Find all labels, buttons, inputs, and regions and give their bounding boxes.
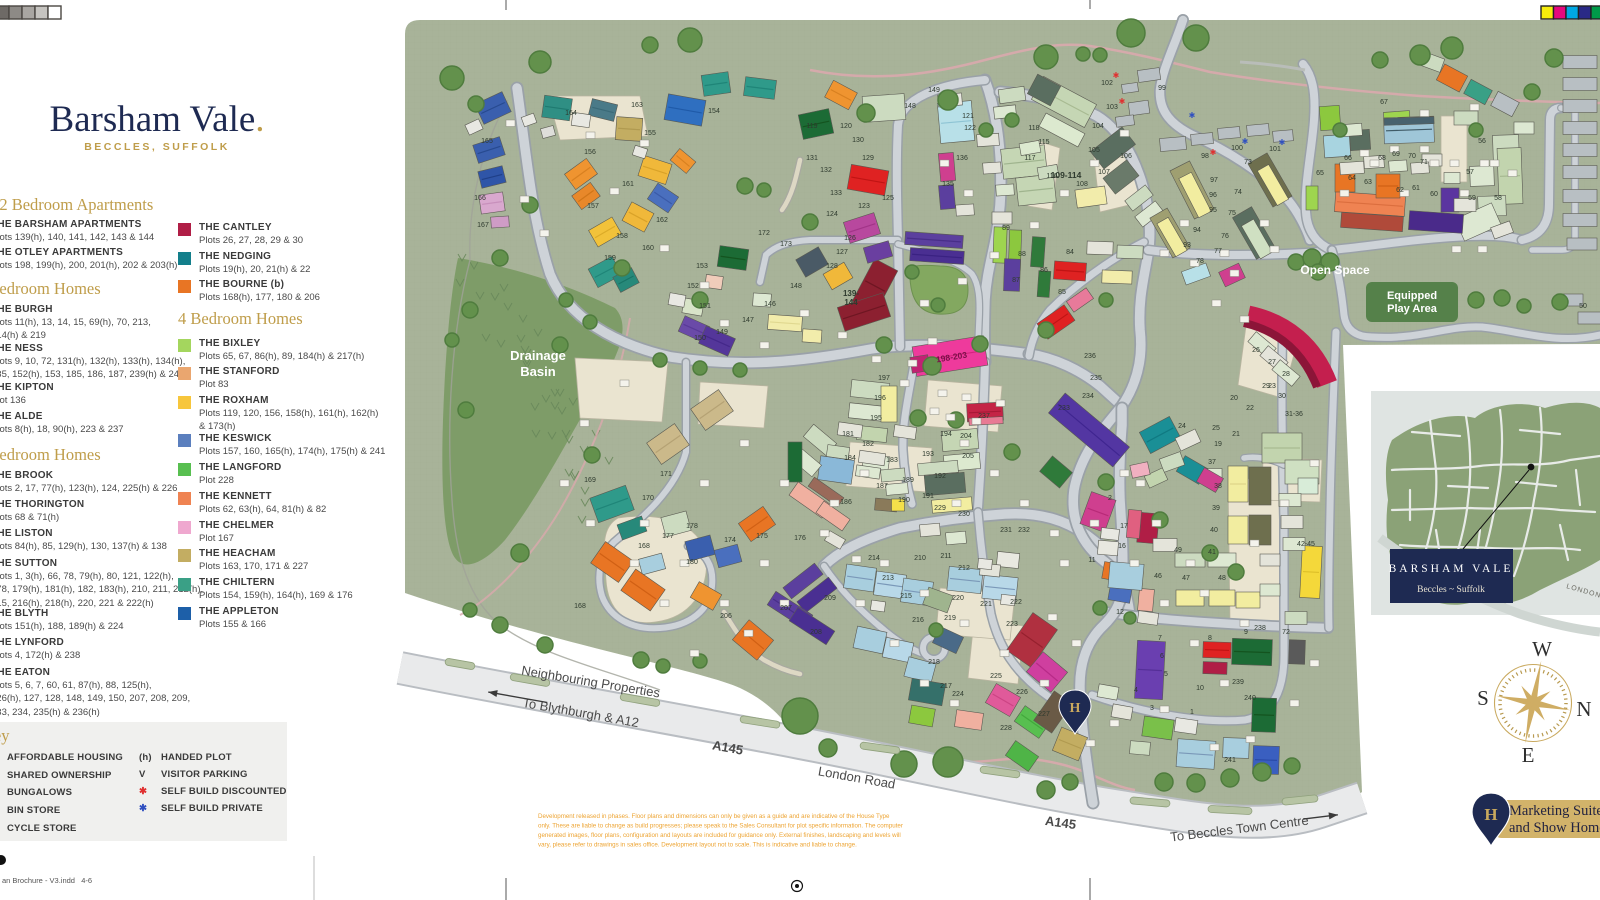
svg-text:66: 66 bbox=[1344, 155, 1352, 162]
svg-text:69: 69 bbox=[1392, 151, 1400, 158]
svg-text:148: 148 bbox=[790, 283, 802, 290]
svg-text:173: 173 bbox=[780, 241, 792, 248]
svg-text:214: 214 bbox=[868, 555, 880, 562]
svg-text:192: 192 bbox=[934, 473, 946, 480]
svg-text:1: 1 bbox=[1190, 709, 1194, 716]
svg-text:E: E bbox=[1522, 743, 1535, 767]
svg-text:209: 209 bbox=[824, 595, 836, 602]
svg-text:117: 117 bbox=[1024, 155, 1035, 162]
svg-text:75: 75 bbox=[1228, 210, 1236, 217]
svg-text:H: H bbox=[1484, 805, 1497, 824]
svg-text:232: 232 bbox=[1018, 527, 1030, 534]
svg-text:70: 70 bbox=[1408, 153, 1416, 160]
svg-text:99: 99 bbox=[1158, 85, 1166, 92]
svg-text:238: 238 bbox=[1254, 625, 1266, 632]
svg-text:222: 222 bbox=[1010, 599, 1022, 606]
svg-text:22: 22 bbox=[1246, 405, 1254, 412]
svg-text:237: 237 bbox=[978, 413, 990, 420]
svg-text:178: 178 bbox=[686, 523, 698, 530]
svg-text:158: 158 bbox=[616, 233, 628, 240]
svg-text:5: 5 bbox=[1164, 671, 1168, 678]
svg-text:38: 38 bbox=[1214, 483, 1222, 490]
svg-text:182: 182 bbox=[862, 441, 874, 448]
svg-text:123: 123 bbox=[858, 203, 870, 210]
svg-text:EquippedPlay Area: EquippedPlay Area bbox=[1387, 290, 1438, 315]
svg-text:21: 21 bbox=[1232, 431, 1240, 438]
svg-text:Beccles ~ Suffolk: Beccles ~ Suffolk bbox=[1417, 584, 1485, 595]
svg-text:78: 78 bbox=[1196, 258, 1204, 265]
svg-text:3: 3 bbox=[1150, 705, 1154, 712]
svg-text:227: 227 bbox=[1038, 711, 1050, 718]
svg-text:139-144: 139-144 bbox=[843, 289, 859, 307]
svg-text:56: 56 bbox=[1478, 138, 1486, 145]
svg-text:217: 217 bbox=[940, 683, 952, 690]
svg-text:240: 240 bbox=[1244, 695, 1256, 702]
svg-text:65: 65 bbox=[1316, 170, 1324, 177]
svg-text:168: 168 bbox=[638, 543, 650, 550]
svg-text:157: 157 bbox=[587, 203, 599, 210]
svg-text:233: 233 bbox=[1058, 405, 1070, 412]
svg-text:H: H bbox=[1070, 701, 1081, 716]
svg-text:129: 129 bbox=[862, 155, 874, 162]
svg-text:50: 50 bbox=[1579, 303, 1587, 310]
svg-text:Development released in phases: Development released in phases. Floor pl… bbox=[538, 813, 890, 820]
svg-text:28: 28 bbox=[1282, 371, 1290, 378]
svg-text:180: 180 bbox=[686, 559, 698, 566]
svg-text:127: 127 bbox=[836, 249, 848, 256]
svg-text:168: 168 bbox=[574, 603, 586, 610]
svg-text:241: 241 bbox=[1224, 757, 1236, 764]
svg-text:74: 74 bbox=[1234, 189, 1242, 196]
svg-text:190: 190 bbox=[898, 497, 910, 504]
svg-text:✱: ✱ bbox=[1113, 71, 1120, 80]
svg-text:62: 62 bbox=[1396, 187, 1404, 194]
svg-text:223: 223 bbox=[1006, 621, 1018, 628]
svg-text:211: 211 bbox=[940, 553, 951, 560]
svg-text:130: 130 bbox=[852, 137, 864, 144]
svg-text:220: 220 bbox=[952, 595, 964, 602]
svg-text:26: 26 bbox=[1252, 347, 1260, 354]
svg-text:96: 96 bbox=[1209, 192, 1217, 199]
svg-text:196: 196 bbox=[874, 395, 886, 402]
svg-text:95: 95 bbox=[1209, 207, 1217, 214]
svg-text:59: 59 bbox=[1468, 195, 1476, 202]
svg-text:101: 101 bbox=[1269, 146, 1281, 153]
svg-text:118: 118 bbox=[1028, 125, 1039, 132]
svg-text:125: 125 bbox=[882, 195, 894, 202]
svg-text:135: 135 bbox=[942, 181, 954, 188]
svg-text:195: 195 bbox=[870, 415, 882, 422]
svg-text:150: 150 bbox=[694, 335, 706, 342]
svg-text:166: 166 bbox=[474, 195, 486, 202]
svg-text:57: 57 bbox=[1466, 169, 1474, 176]
svg-text:153: 153 bbox=[696, 263, 708, 270]
svg-text:228: 228 bbox=[1000, 725, 1012, 732]
svg-text:Open Space: Open Space bbox=[1300, 263, 1370, 277]
svg-text:149: 149 bbox=[716, 329, 728, 336]
svg-text:169: 169 bbox=[584, 477, 596, 484]
svg-text:120: 120 bbox=[840, 123, 852, 130]
svg-text:172: 172 bbox=[758, 230, 770, 237]
svg-text:W: W bbox=[1532, 637, 1552, 661]
svg-text:234: 234 bbox=[1082, 393, 1094, 400]
svg-text:4: 4 bbox=[1134, 687, 1138, 694]
svg-text:25: 25 bbox=[1212, 425, 1220, 432]
svg-text:193: 193 bbox=[922, 451, 934, 458]
svg-text:72: 72 bbox=[1282, 629, 1290, 636]
svg-text:208: 208 bbox=[810, 629, 822, 636]
svg-text:213: 213 bbox=[882, 575, 894, 582]
svg-text:163: 163 bbox=[631, 102, 643, 109]
svg-text:97: 97 bbox=[1210, 177, 1218, 184]
svg-text:98: 98 bbox=[1201, 153, 1209, 160]
svg-text:9: 9 bbox=[1244, 629, 1248, 636]
svg-text:47: 47 bbox=[1182, 575, 1190, 582]
svg-text:107: 107 bbox=[1098, 169, 1110, 176]
svg-text:48: 48 bbox=[1218, 575, 1226, 582]
svg-text:219: 219 bbox=[944, 615, 956, 622]
svg-text:73: 73 bbox=[1244, 159, 1252, 166]
svg-text:151: 151 bbox=[699, 303, 711, 310]
svg-text:231: 231 bbox=[1000, 527, 1012, 534]
svg-text:86: 86 bbox=[1040, 267, 1048, 274]
svg-text:216: 216 bbox=[912, 617, 924, 624]
svg-text:167: 167 bbox=[477, 222, 489, 229]
svg-text:128: 128 bbox=[826, 263, 838, 270]
svg-text:177: 177 bbox=[662, 533, 674, 540]
svg-text:106: 106 bbox=[1120, 153, 1132, 160]
svg-text:Marketing Suite: Marketing Suite bbox=[1509, 803, 1600, 819]
svg-text:159: 159 bbox=[604, 255, 616, 262]
svg-text:239: 239 bbox=[1232, 679, 1244, 686]
svg-text:✱: ✱ bbox=[1210, 148, 1217, 157]
svg-text:94: 94 bbox=[1193, 227, 1201, 234]
svg-text:181: 181 bbox=[842, 431, 854, 438]
svg-text:164: 164 bbox=[565, 110, 577, 117]
svg-text:108: 108 bbox=[1076, 181, 1088, 188]
svg-text:10: 10 bbox=[1196, 685, 1204, 692]
svg-text:29: 29 bbox=[1262, 383, 1270, 390]
svg-text:235: 235 bbox=[1090, 375, 1102, 382]
svg-text:109-114: 109-114 bbox=[1051, 170, 1082, 180]
svg-text:174: 174 bbox=[724, 537, 736, 544]
svg-text:146: 146 bbox=[764, 301, 776, 308]
svg-text:149: 149 bbox=[928, 87, 940, 94]
svg-text:126: 126 bbox=[844, 235, 856, 242]
svg-text:✱: ✱ bbox=[1242, 137, 1249, 146]
svg-text:210: 210 bbox=[914, 555, 926, 562]
svg-text:58: 58 bbox=[1494, 195, 1502, 202]
svg-text:S: S bbox=[1477, 686, 1489, 710]
svg-text:156: 156 bbox=[584, 149, 596, 156]
svg-text:221: 221 bbox=[980, 601, 992, 608]
svg-text:generated images, floor plans,: generated images, floor plans, configura… bbox=[538, 832, 901, 839]
svg-text:27: 27 bbox=[1268, 359, 1276, 366]
svg-text:104: 104 bbox=[1092, 123, 1104, 130]
svg-text:170: 170 bbox=[642, 495, 654, 502]
svg-text:87: 87 bbox=[1012, 277, 1020, 284]
svg-text:204: 204 bbox=[960, 433, 972, 440]
svg-text:40: 40 bbox=[1210, 527, 1218, 534]
svg-text:224: 224 bbox=[952, 691, 964, 698]
svg-text:49: 49 bbox=[1174, 547, 1182, 554]
svg-text:154: 154 bbox=[708, 108, 720, 115]
svg-text:176: 176 bbox=[794, 535, 806, 542]
svg-text:236: 236 bbox=[1084, 353, 1096, 360]
svg-text:31-36: 31-36 bbox=[1285, 411, 1303, 418]
svg-text:2: 2 bbox=[1108, 495, 1112, 502]
svg-text:160: 160 bbox=[642, 245, 654, 252]
svg-text:17: 17 bbox=[1120, 523, 1128, 530]
svg-text:148: 148 bbox=[904, 103, 916, 110]
svg-text:186: 186 bbox=[840, 499, 852, 506]
svg-text:and Show Home: and Show Home bbox=[1509, 820, 1600, 836]
svg-text:152: 152 bbox=[687, 283, 699, 290]
svg-text:183: 183 bbox=[886, 457, 898, 464]
svg-text:184: 184 bbox=[844, 455, 856, 462]
svg-text:BARSHAM VALE: BARSHAM VALE bbox=[1389, 563, 1514, 575]
svg-text:119: 119 bbox=[806, 123, 817, 130]
svg-text:20: 20 bbox=[1230, 395, 1238, 402]
svg-text:175: 175 bbox=[756, 533, 768, 540]
svg-text:39: 39 bbox=[1212, 505, 1220, 512]
svg-text:✱: ✱ bbox=[1119, 97, 1126, 106]
svg-text:171: 171 bbox=[660, 471, 672, 478]
svg-text:197: 197 bbox=[878, 375, 890, 382]
svg-text:7: 7 bbox=[1158, 635, 1162, 642]
svg-text:63: 63 bbox=[1364, 179, 1372, 186]
svg-text:89: 89 bbox=[1002, 225, 1010, 232]
svg-text:205: 205 bbox=[962, 453, 974, 460]
svg-text:218: 218 bbox=[928, 659, 940, 666]
svg-text:191: 191 bbox=[922, 493, 934, 500]
svg-text:136: 136 bbox=[956, 155, 968, 162]
svg-text:132: 132 bbox=[820, 167, 832, 174]
svg-text:71: 71 bbox=[1420, 159, 1428, 166]
svg-text:8: 8 bbox=[1208, 635, 1212, 642]
svg-text:131: 131 bbox=[806, 155, 818, 162]
svg-text:121: 121 bbox=[962, 113, 974, 120]
svg-text:19: 19 bbox=[1214, 441, 1222, 448]
svg-text:100: 100 bbox=[1231, 145, 1243, 152]
svg-text:24: 24 bbox=[1178, 423, 1186, 430]
svg-text:N: N bbox=[1576, 697, 1591, 721]
svg-text:162: 162 bbox=[656, 217, 668, 224]
svg-text:102: 102 bbox=[1101, 80, 1113, 87]
svg-text:229: 229 bbox=[934, 505, 946, 512]
svg-text:93: 93 bbox=[1183, 242, 1191, 249]
svg-text:77: 77 bbox=[1214, 248, 1222, 255]
svg-text:226: 226 bbox=[1016, 689, 1028, 696]
svg-text:16: 16 bbox=[1118, 543, 1126, 550]
svg-text:147: 147 bbox=[742, 317, 754, 324]
svg-text:207: 207 bbox=[780, 605, 792, 612]
svg-text:194: 194 bbox=[940, 431, 952, 438]
svg-text:64: 64 bbox=[1348, 175, 1356, 182]
svg-text:30: 30 bbox=[1278, 393, 1286, 400]
svg-text:215: 215 bbox=[900, 593, 912, 600]
svg-text:161: 161 bbox=[622, 181, 634, 188]
svg-text:88: 88 bbox=[1018, 251, 1026, 258]
svg-text:41: 41 bbox=[1208, 549, 1216, 556]
svg-text:230: 230 bbox=[958, 511, 970, 518]
svg-text:105: 105 bbox=[1088, 147, 1100, 154]
svg-text:122: 122 bbox=[964, 125, 976, 132]
svg-text:60: 60 bbox=[1430, 191, 1438, 198]
svg-text:165: 165 bbox=[481, 138, 493, 145]
svg-text:103: 103 bbox=[1106, 104, 1118, 111]
svg-text:✱: ✱ bbox=[1189, 111, 1196, 120]
svg-text:only. These are liable to chan: only. These are liable to change as buil… bbox=[538, 823, 903, 830]
svg-text:vary, please refer to drawings: vary, please refer to drawings in sales … bbox=[538, 842, 857, 849]
svg-text:84: 84 bbox=[1066, 249, 1074, 256]
svg-text:115: 115 bbox=[1038, 139, 1049, 146]
svg-text:225: 225 bbox=[990, 673, 1002, 680]
svg-text:61: 61 bbox=[1412, 185, 1420, 192]
svg-text:✱: ✱ bbox=[1279, 138, 1286, 147]
svg-text:85: 85 bbox=[1058, 289, 1066, 296]
svg-text:12: 12 bbox=[1116, 609, 1124, 616]
svg-text:76: 76 bbox=[1221, 233, 1229, 240]
svg-text:11: 11 bbox=[1088, 557, 1095, 564]
svg-text:68: 68 bbox=[1378, 155, 1386, 162]
svg-text:187: 187 bbox=[876, 483, 888, 490]
svg-text:37: 37 bbox=[1208, 459, 1216, 466]
svg-text:46: 46 bbox=[1154, 573, 1162, 580]
svg-text:133: 133 bbox=[830, 190, 842, 197]
svg-text:212: 212 bbox=[958, 565, 970, 572]
svg-text:124: 124 bbox=[826, 211, 838, 218]
svg-text:206: 206 bbox=[720, 613, 732, 620]
svg-text:67: 67 bbox=[1380, 99, 1388, 106]
svg-text:155: 155 bbox=[644, 130, 656, 137]
svg-text:42-45: 42-45 bbox=[1297, 541, 1315, 548]
svg-text:6: 6 bbox=[1160, 653, 1164, 660]
svg-text:189: 189 bbox=[902, 477, 914, 484]
